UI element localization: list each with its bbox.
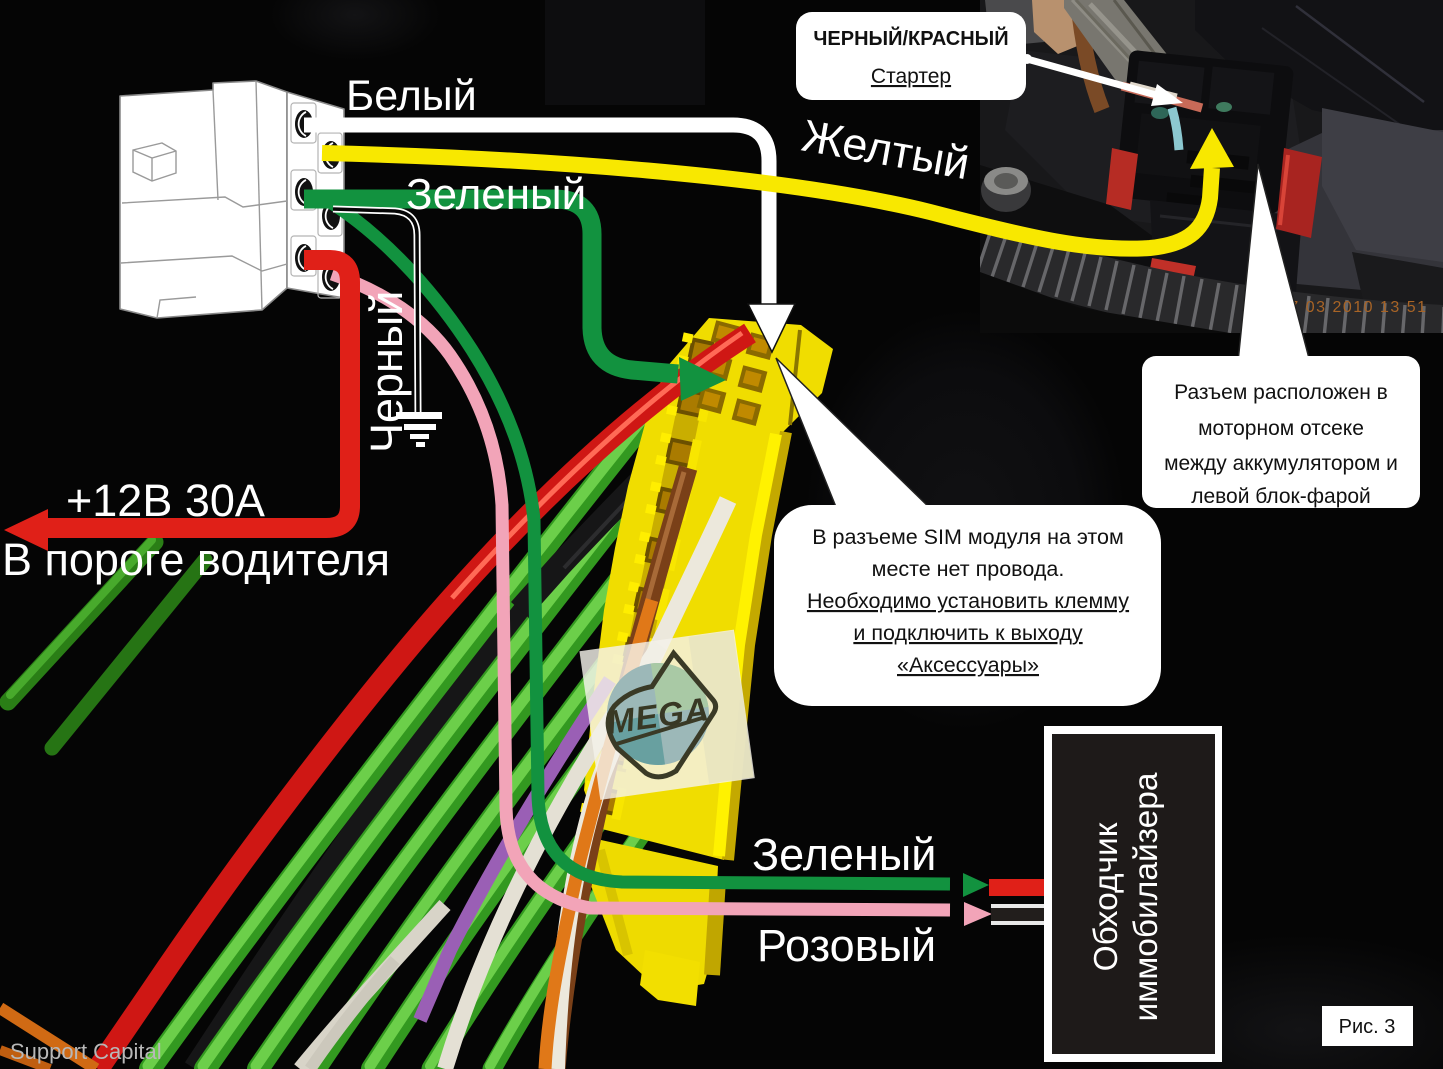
svg-text:В разъеме SIM модуля на этом: В разъеме SIM модуля на этом xyxy=(812,525,1124,549)
svg-text:Зеленый: Зеленый xyxy=(406,170,586,219)
svg-text:Белый: Белый xyxy=(346,72,477,120)
svg-text:месте нет провода.: месте нет провода. xyxy=(872,557,1065,581)
svg-text:Support Capital: Support Capital xyxy=(10,1039,162,1064)
svg-text:и подключить к выходу: и подключить к выходу xyxy=(853,621,1083,645)
svg-text:Черный: Черный xyxy=(361,291,412,453)
svg-text:Необходимо установить клемму: Необходимо установить клемму xyxy=(807,589,1129,613)
svg-text:Обходчик: Обходчик xyxy=(1088,822,1125,971)
svg-text:Стартер: Стартер xyxy=(871,65,951,88)
svg-text:между аккумулятором и: между аккумулятором и xyxy=(1164,452,1398,475)
svg-text:Разъем расположен в: Разъем расположен в xyxy=(1174,381,1388,404)
svg-text:+12В 30А: +12В 30А xyxy=(66,475,265,526)
svg-text:Розовый: Розовый xyxy=(757,920,936,971)
svg-text:В пороге водителя: В пороге водителя xyxy=(2,534,390,585)
svg-text:«Аксессуары»: «Аксессуары» xyxy=(897,653,1039,677)
svg-text:ЧЕРНЫЙ/КРАСНЫЙ: ЧЕРНЫЙ/КРАСНЫЙ xyxy=(813,26,1008,50)
svg-text:иммобилайзера: иммобилайзера xyxy=(1128,772,1165,1021)
svg-text:17 03 2010 13 51: 17 03 2010 13 51 xyxy=(1279,299,1428,316)
svg-text:моторном отсеке: моторном отсеке xyxy=(1198,417,1364,440)
svg-text:Зеленый: Зеленый xyxy=(752,829,936,880)
svg-text:левой блок-фарой: левой блок-фарой xyxy=(1191,485,1371,508)
svg-text:Рис. 3: Рис. 3 xyxy=(1339,1016,1396,1038)
